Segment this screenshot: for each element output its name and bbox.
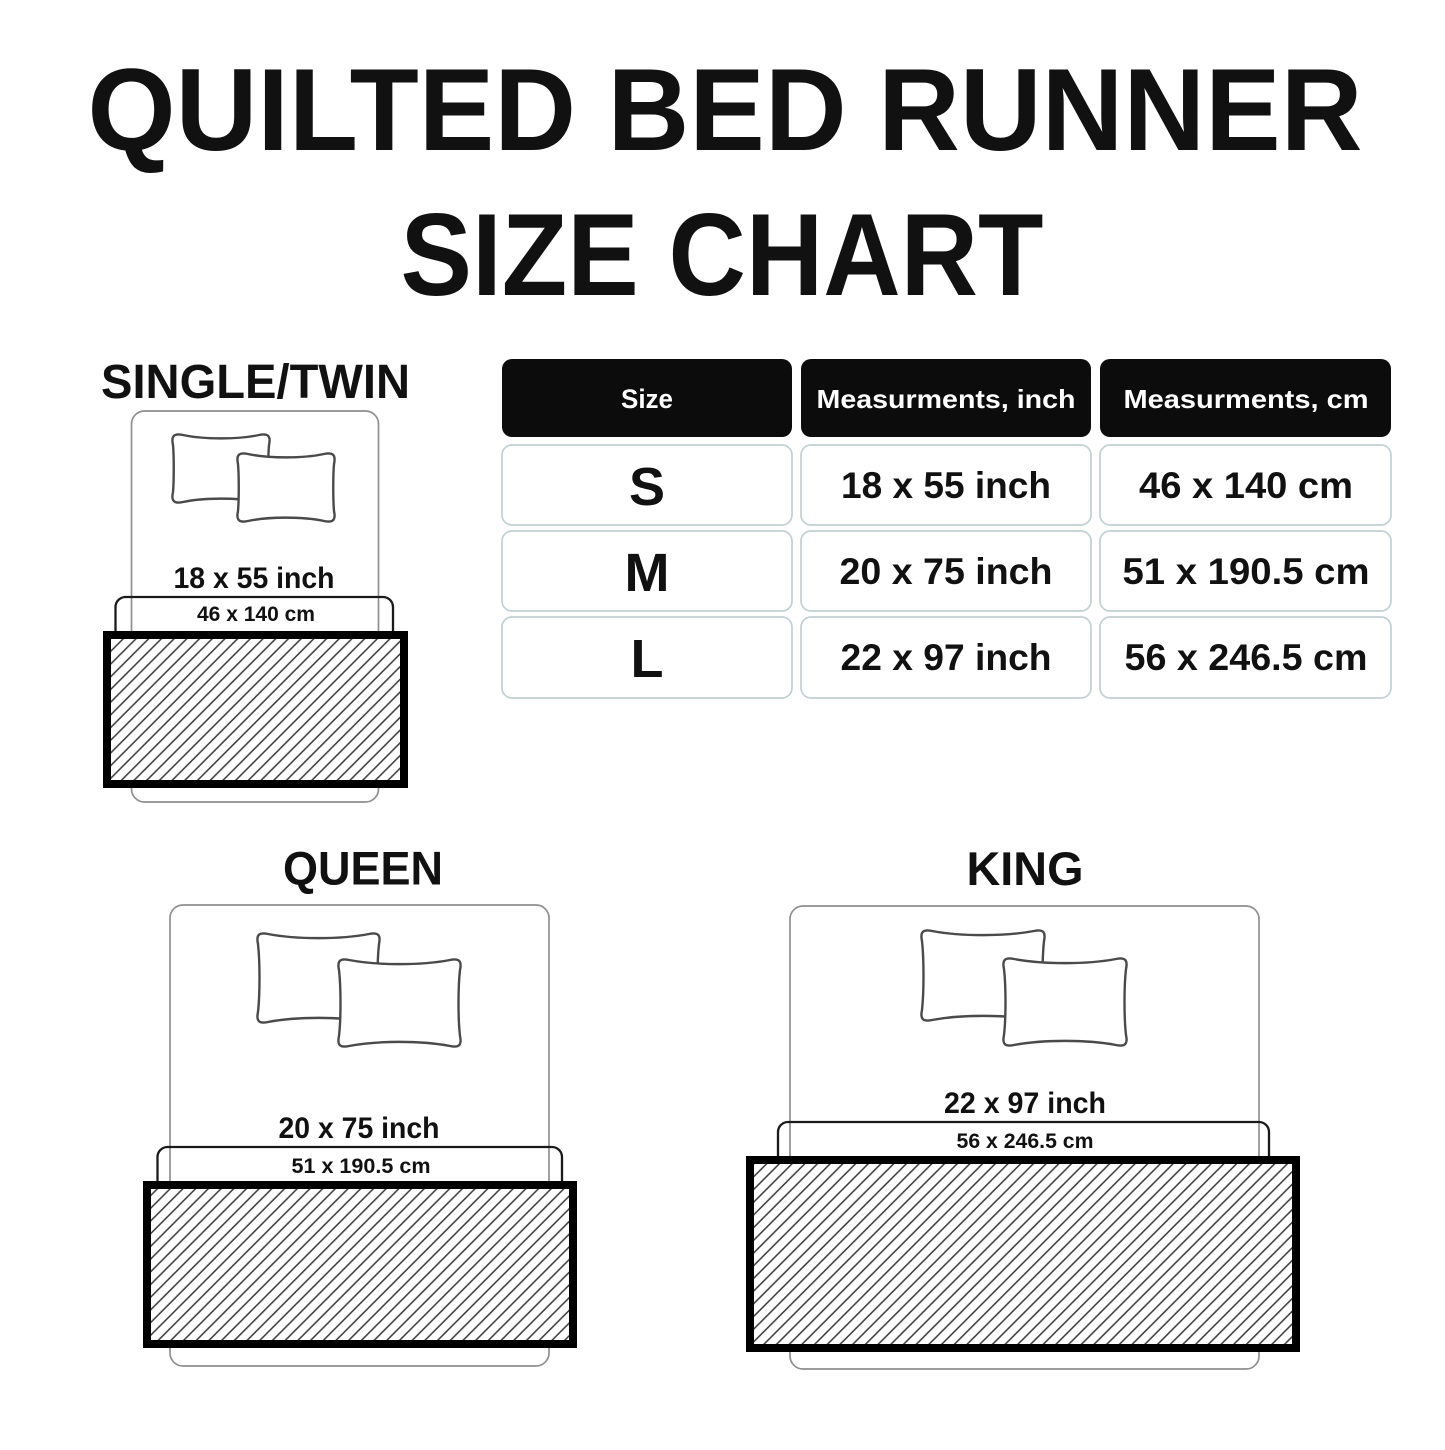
svg-text:KING: KING — [967, 842, 1084, 895]
svg-text:18 x 55 inch: 18 x 55 inch — [174, 562, 335, 595]
svg-text:46 x 140 cm: 46 x 140 cm — [1139, 465, 1353, 506]
svg-text:51 x 190.5 cm: 51 x 190.5 cm — [292, 1155, 431, 1178]
svg-text:46 x 140 cm: 46 x 140 cm — [197, 603, 315, 626]
svg-text:S: S — [629, 457, 665, 517]
svg-text:Measurments, inch: Measurments, inch — [817, 384, 1076, 414]
svg-text:Measurments, cm: Measurments, cm — [1124, 384, 1369, 414]
svg-text:Size: Size — [621, 384, 673, 414]
svg-text:22 x 97 inch: 22 x 97 inch — [944, 1087, 1106, 1120]
svg-text:QUEEN: QUEEN — [283, 842, 443, 895]
svg-text:56 x 246.5 cm: 56 x 246.5 cm — [957, 1130, 1094, 1153]
svg-text:SIZE CHART: SIZE CHART — [401, 189, 1044, 320]
svg-text:SINGLE/TWIN: SINGLE/TWIN — [101, 356, 410, 409]
svg-text:M: M — [625, 543, 670, 603]
svg-text:51 x 190.5 cm: 51 x 190.5 cm — [1123, 551, 1370, 592]
svg-text:18 x 55 inch: 18 x 55 inch — [841, 465, 1051, 506]
svg-text:QUILTED BED RUNNER: QUILTED BED RUNNER — [88, 44, 1363, 175]
svg-text:20 x 75 inch: 20 x 75 inch — [840, 551, 1053, 592]
svg-text:20 x 75 inch: 20 x 75 inch — [279, 1112, 440, 1145]
svg-text:L: L — [631, 629, 664, 689]
svg-text:22 x 97 inch: 22 x 97 inch — [841, 637, 1052, 678]
svg-text:56 x 246.5 cm: 56 x 246.5 cm — [1125, 637, 1368, 678]
